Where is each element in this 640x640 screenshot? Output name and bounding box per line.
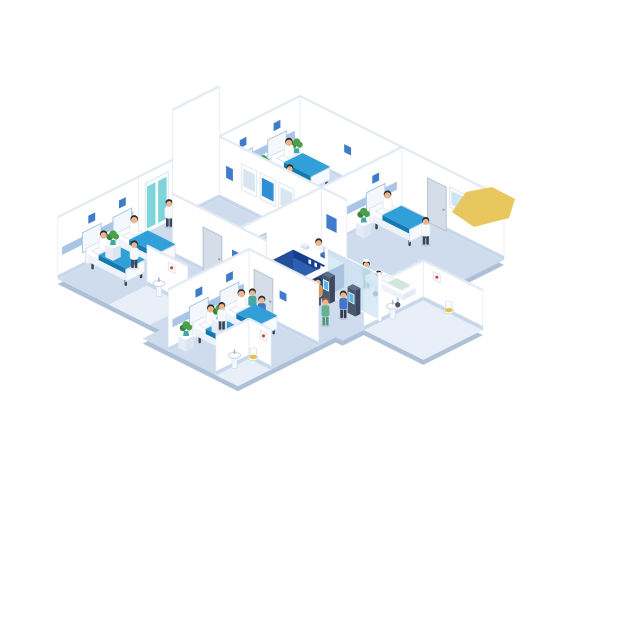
head [259, 298, 265, 304]
kiosk-body-se [355, 288, 360, 317]
hospital-floor-illustration [0, 0, 640, 640]
toilet-lid [249, 355, 257, 359]
head [316, 240, 322, 246]
wall-art-dot [435, 276, 438, 279]
head [423, 219, 429, 225]
faucet [392, 300, 394, 305]
kiosk-screen [323, 280, 328, 292]
torso [218, 309, 227, 321]
patient-torso [383, 197, 392, 210]
head [131, 242, 137, 248]
door [428, 178, 447, 231]
legs [426, 235, 429, 245]
torso [339, 298, 348, 310]
foliage [182, 321, 190, 329]
legs [326, 316, 329, 326]
patient-torso [130, 222, 139, 235]
legs [344, 309, 347, 319]
plant-pot [294, 148, 300, 153]
foliage [109, 230, 117, 238]
head [340, 292, 346, 298]
patient-head [238, 291, 244, 297]
legs [222, 320, 225, 330]
glass-post [378, 272, 381, 320]
faucet [158, 278, 160, 283]
legs [219, 320, 222, 330]
building [58, 86, 515, 391]
potted-plant [178, 321, 193, 352]
patient-head [131, 217, 137, 223]
glass-door-pane [147, 182, 156, 228]
figure-shadow [421, 243, 431, 247]
head [219, 304, 225, 310]
legs [166, 217, 169, 227]
plant-pot [110, 240, 116, 245]
legs [322, 316, 325, 326]
legs [135, 259, 138, 269]
torso [165, 206, 174, 218]
foliage [293, 138, 301, 146]
legs [340, 309, 343, 319]
wheel [395, 302, 400, 307]
torso [130, 248, 139, 260]
hospital-floor-svg [0, 0, 640, 640]
check-in-kiosk [348, 284, 361, 316]
toilet-lid [445, 308, 453, 312]
door-knob [269, 300, 271, 302]
patient-head [286, 140, 292, 146]
torso [321, 305, 330, 317]
potted-plant [105, 230, 120, 261]
door-knob [442, 209, 444, 211]
potted-plant [356, 208, 371, 239]
kiosk-body-se [330, 275, 335, 304]
head [250, 290, 256, 296]
figure-shadow [129, 266, 139, 270]
torso [422, 224, 431, 236]
head [166, 201, 172, 207]
plant-pot [183, 331, 189, 336]
wall-art-dot [262, 334, 265, 337]
patient-torso [237, 296, 246, 309]
legs [131, 259, 134, 269]
figure-shadow [338, 316, 348, 320]
nurse-cap [364, 259, 370, 262]
foliage [360, 208, 368, 216]
plant-pot [361, 218, 367, 223]
legs [423, 235, 426, 245]
wall-art-dot [170, 266, 173, 269]
patient-head [384, 192, 390, 198]
faucet [234, 349, 236, 354]
patient-torso [284, 145, 293, 158]
legs [170, 217, 173, 227]
door-knob [218, 258, 220, 260]
patient-head [100, 232, 106, 238]
figure-shadow [321, 324, 331, 328]
head [323, 300, 329, 306]
